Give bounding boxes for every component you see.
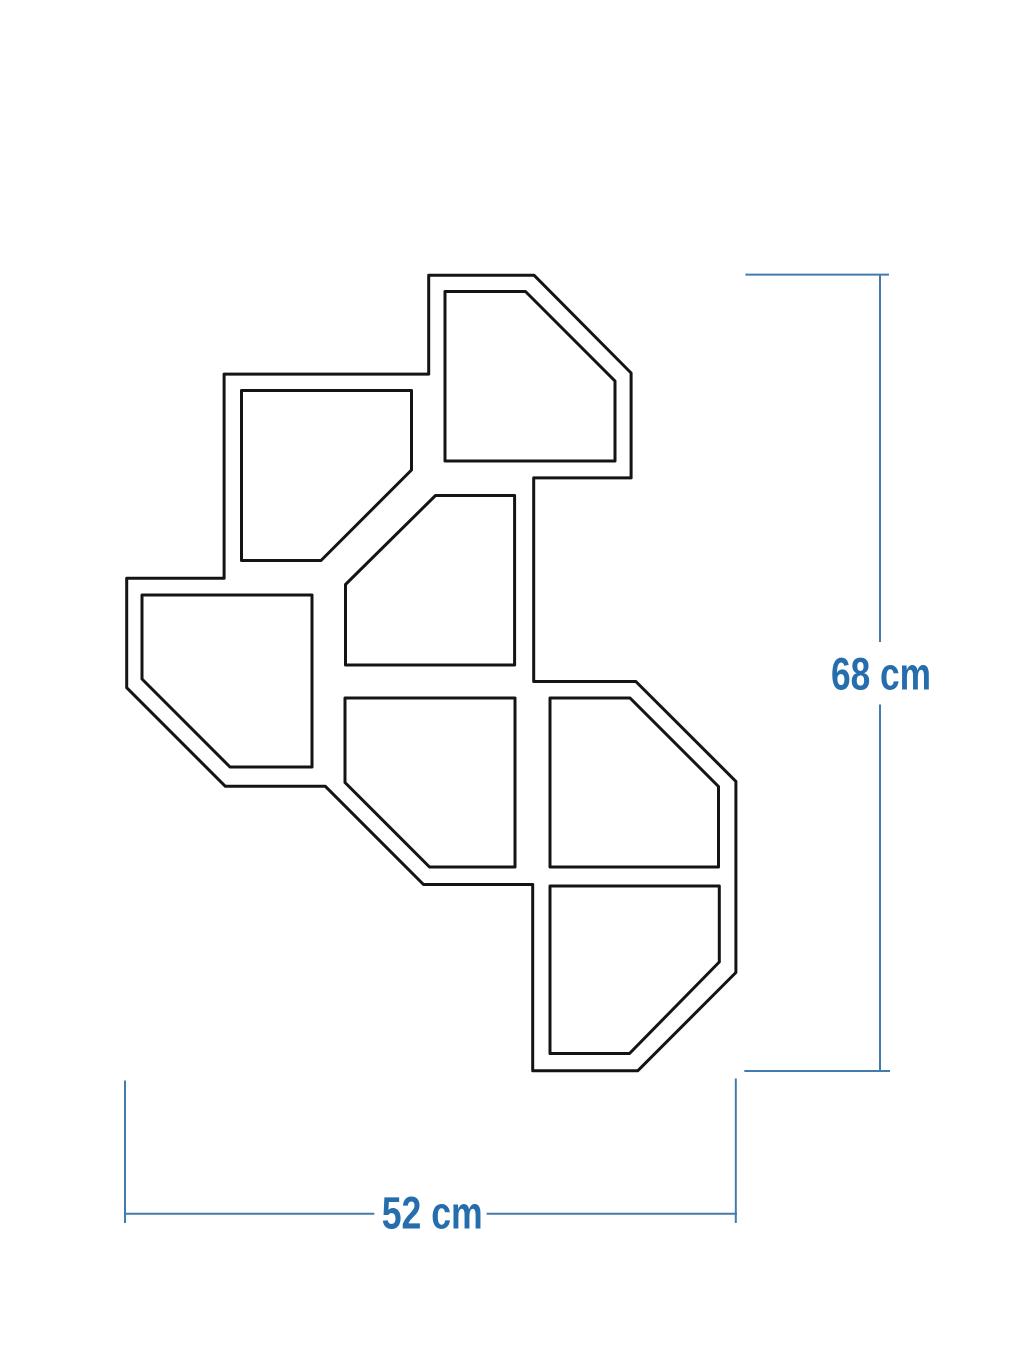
svg-text:68 cm: 68 cm (831, 649, 931, 700)
svg-text:52 cm: 52 cm (382, 1188, 483, 1239)
